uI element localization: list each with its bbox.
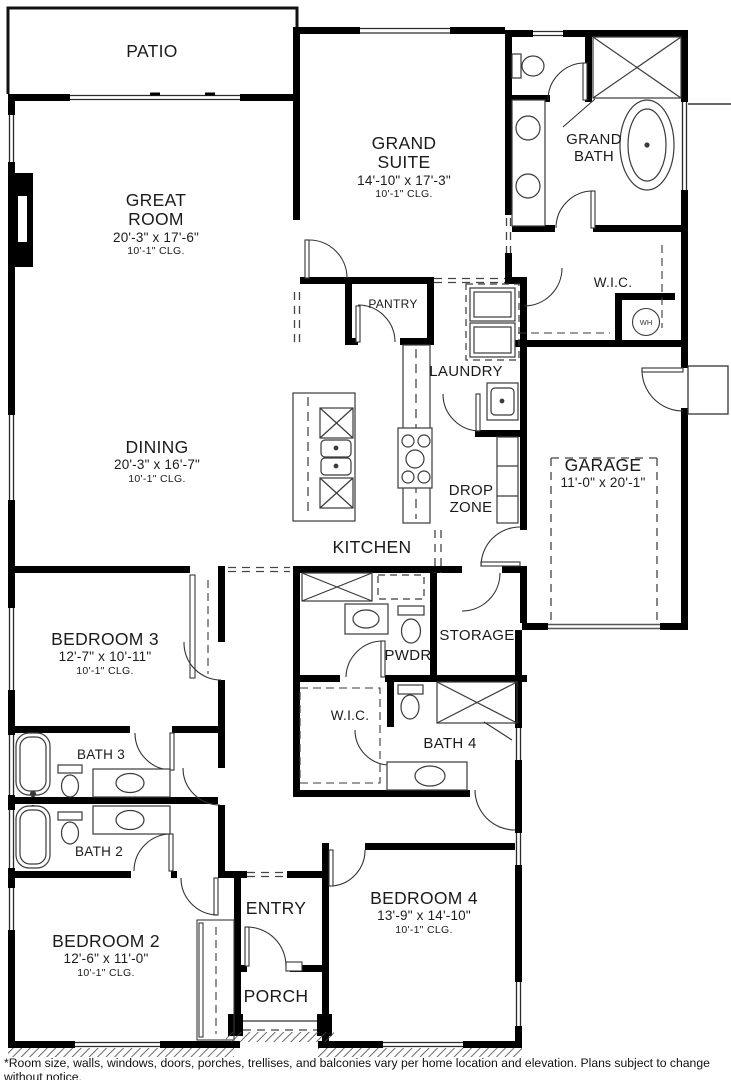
- room-label-bath-4: BATH 4: [423, 736, 476, 753]
- room-label-porch: PORCH: [244, 987, 309, 1006]
- room-name: LAUNDRY: [429, 364, 503, 381]
- room-name: W.I.C.: [594, 276, 633, 291]
- room-label-great-room: GREAT ROOM 20'-3" x 17'-6" 10'-1" CLG.: [113, 191, 199, 258]
- porch-and-landing: [243, 366, 728, 1021]
- room-dims: 12'-7" x 10'-11": [51, 650, 159, 665]
- sidewalk-hatch: [8, 1032, 522, 1057]
- room-name: BEDROOM 4: [370, 889, 478, 908]
- garage-door: [548, 625, 660, 629]
- room-label-grand-bath: GRAND BATH: [566, 132, 622, 165]
- room-label-bedroom-3: BEDROOM 3 12'-7" x 10'-11" 10'-1" CLG.: [51, 630, 159, 678]
- room-name: PATIO: [126, 42, 177, 61]
- room-name: BEDROOM 3: [51, 630, 159, 649]
- room-ceiling: 10'-1" CLG.: [114, 474, 200, 486]
- room-dims: 20'-3" x 17'-6": [113, 231, 199, 246]
- room-label-bedroom-2: BEDROOM 2 12'-6" x 11'-0" 10'-1" CLG.: [52, 932, 160, 980]
- room-label-dining: DINING 20'-3" x 16'-7" 10'-1" CLG.: [114, 438, 200, 486]
- room-name: DINING: [114, 438, 200, 457]
- room-label-kitchen: KITCHEN: [333, 538, 412, 557]
- room-label-bath-2: BATH 2: [75, 845, 123, 860]
- room-name: BATH 2: [75, 845, 123, 860]
- room-label-patio: PATIO: [126, 42, 177, 61]
- room-label-garage: GARAGE 11'-0" x 20'-1": [560, 456, 645, 491]
- room-name: PANTRY: [368, 298, 417, 311]
- room-name: PWDR: [384, 648, 431, 665]
- room-name: PORCH: [244, 987, 309, 1006]
- floor-plan: WH PATIO GREAT ROOM 20'-3" x 17'-6" 10'-…: [0, 0, 731, 1080]
- room-label-laundry: LAUNDRY: [429, 364, 503, 381]
- room-ceiling: 10'-1" CLG.: [51, 666, 159, 678]
- room-ceiling: 10'-1" CLG.: [370, 925, 478, 937]
- room-name: GRAND BATH: [566, 132, 622, 165]
- room-name: GREAT ROOM: [120, 191, 192, 230]
- room-label-bedroom-4: BEDROOM 4 13'-9" x 14'-10" 10'-1" CLG.: [370, 889, 478, 937]
- room-label-wic-2: W.I.C.: [331, 709, 370, 724]
- room-name: BATH 3: [77, 748, 125, 763]
- room-label-pantry: PANTRY: [368, 298, 417, 311]
- room-name: BATH 4: [423, 736, 476, 753]
- room-name: KITCHEN: [333, 538, 412, 557]
- fireplace-slot: [18, 196, 27, 242]
- room-ceiling: 10'-1" CLG.: [113, 246, 199, 258]
- room-label-storage: STORAGE: [439, 628, 514, 645]
- room-name: ENTRY: [246, 899, 307, 918]
- room-dims: 12'-6" x 11'-0": [52, 952, 160, 967]
- room-dims: 20'-3" x 16'-7": [114, 458, 200, 473]
- room-ceiling: 10'-1" CLG.: [52, 968, 160, 980]
- kitchen-fixtures: [293, 345, 432, 599]
- room-name: DROP ZONE: [443, 483, 499, 516]
- room-dims: 11'-0" x 20'-1": [560, 476, 645, 491]
- room-label-grand-suite: GRAND SUITE 14'-10" x 17'-3" 10'-1" CLG.: [357, 134, 451, 201]
- room-name: STORAGE: [439, 628, 514, 645]
- room-ceiling: 10'-1" CLG.: [357, 189, 451, 201]
- room-name: GARAGE: [560, 456, 645, 475]
- room-label-bath-3: BATH 3: [77, 748, 125, 763]
- room-label-entry: ENTRY: [246, 899, 307, 918]
- room-label-drop-zone: DROP ZONE: [443, 483, 499, 516]
- room-name: GRAND SUITE: [368, 134, 440, 173]
- room-label-pwdr: PWDR: [384, 648, 431, 665]
- water-heater-label: WH: [640, 318, 653, 327]
- disclaimer-text: *Room size, walls, windows, doors, porch…: [4, 1056, 731, 1080]
- room-name: BEDROOM 2: [52, 932, 160, 951]
- room-label-wic-grand: W.I.C.: [594, 276, 633, 291]
- room-dims: 14'-10" x 17'-3": [357, 174, 451, 189]
- room-name: W.I.C.: [331, 709, 370, 724]
- room-dims: 13'-9" x 14'-10": [370, 909, 478, 924]
